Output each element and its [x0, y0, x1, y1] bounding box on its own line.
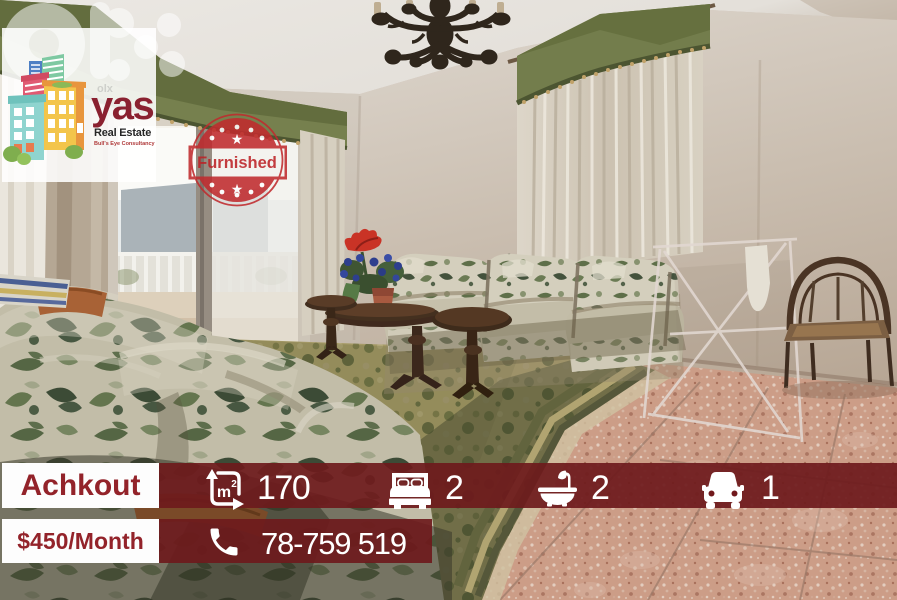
svg-text:★: ★	[231, 181, 244, 197]
svg-text:Furnished: Furnished	[197, 154, 277, 172]
svg-text:2: 2	[231, 479, 237, 490]
svg-text:m: m	[217, 484, 231, 501]
svg-text:★: ★	[231, 131, 244, 147]
